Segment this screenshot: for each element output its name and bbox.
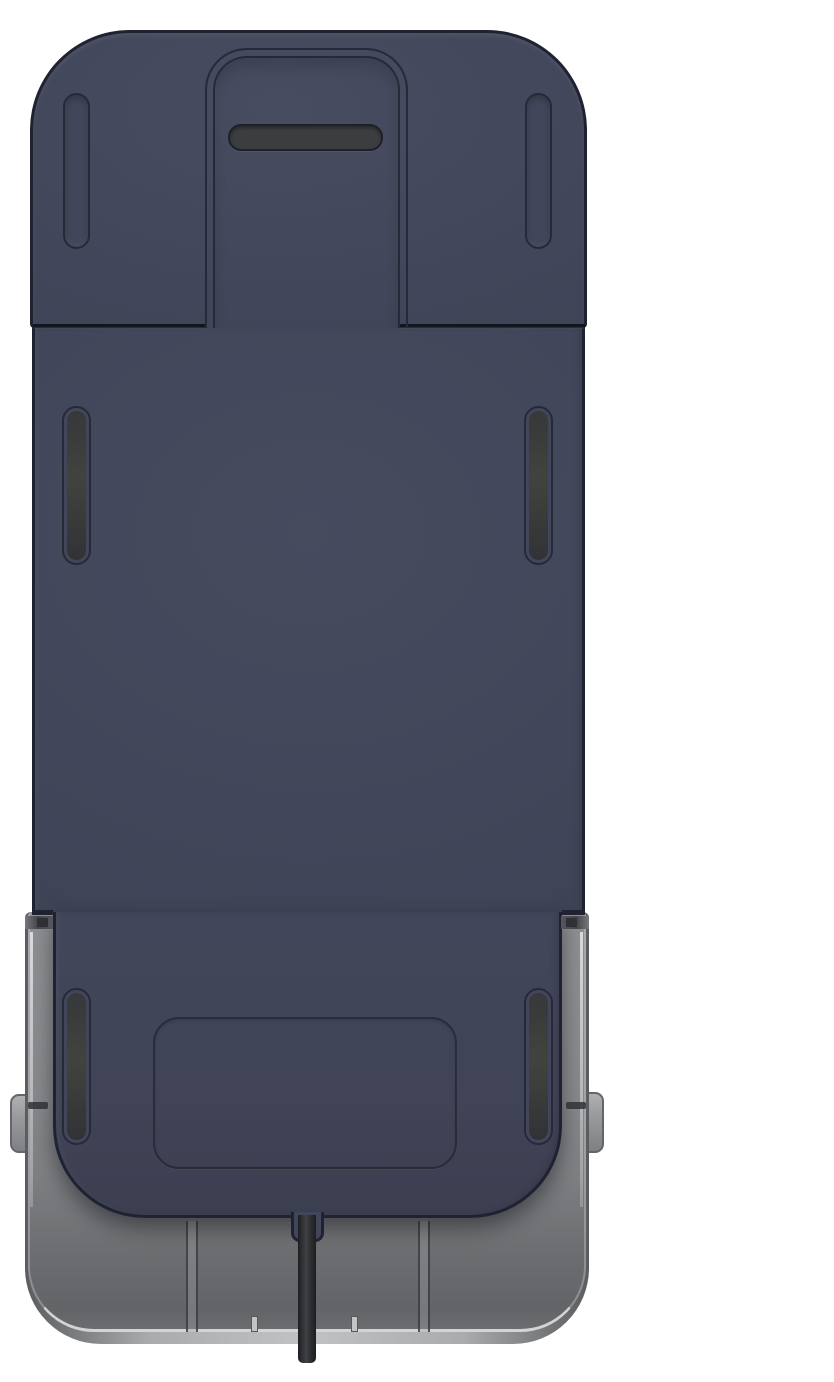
tray-seam-right [418, 1221, 430, 1332]
body-step-edge-right [562, 910, 585, 915]
lower-slot-right-opening [529, 993, 548, 1140]
body-step-edge-left [32, 910, 53, 915]
label-recess [153, 1017, 457, 1169]
product-render-canvas [0, 0, 834, 1382]
cap-cutout-inner-line [213, 56, 400, 328]
middle-slot-left-opening [67, 411, 86, 560]
tab-seam-right [566, 1102, 586, 1109]
middle-slot-right-opening [529, 411, 548, 560]
horizontal-vent-slot [228, 124, 383, 151]
middle-slot-left [62, 406, 91, 565]
power-cable [298, 1215, 316, 1363]
middle-slot-right [524, 406, 553, 565]
tray-notch-right [351, 1316, 358, 1332]
main-body-upper [32, 326, 585, 915]
tab-seam-left [28, 1102, 48, 1109]
tray-rim-latch-right [566, 918, 577, 927]
tray-rim-latch-left [37, 918, 48, 927]
lower-slot-left [62, 988, 91, 1145]
lower-slot-left-opening [67, 993, 86, 1140]
cap-body-seam-left [33, 324, 205, 329]
lower-slot-right [524, 988, 553, 1145]
tray-notch-left [251, 1316, 258, 1332]
tray-wall-highlight-right [580, 932, 583, 1207]
tray-seam-left [186, 1221, 198, 1332]
cap-slot-right [525, 93, 552, 249]
cap-slot-left [63, 93, 90, 249]
cap-body-seam-right [400, 324, 585, 329]
tray-wall-highlight-left [30, 932, 33, 1207]
